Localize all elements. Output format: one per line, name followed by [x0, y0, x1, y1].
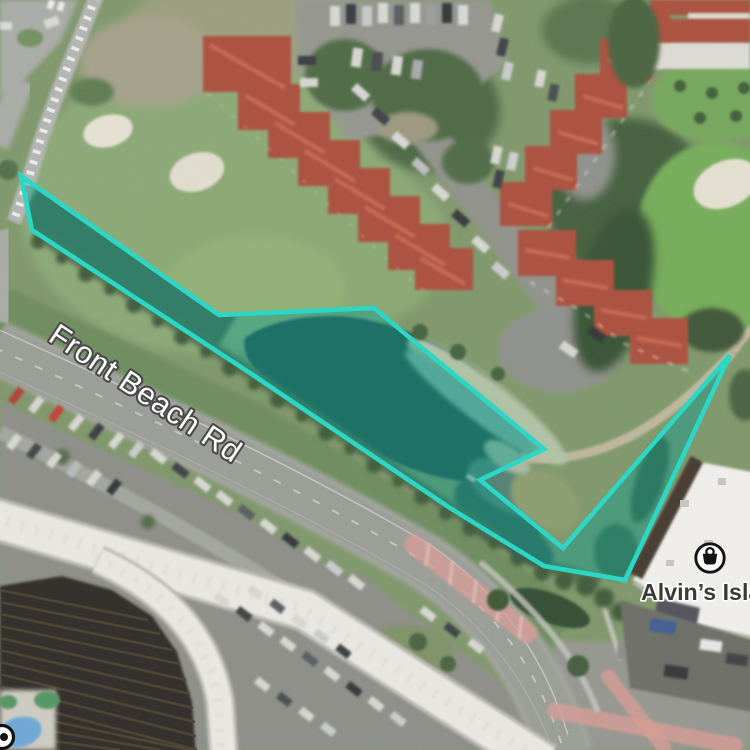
svg-text:Alvin’s Islan: Alvin’s Islan: [641, 579, 750, 605]
